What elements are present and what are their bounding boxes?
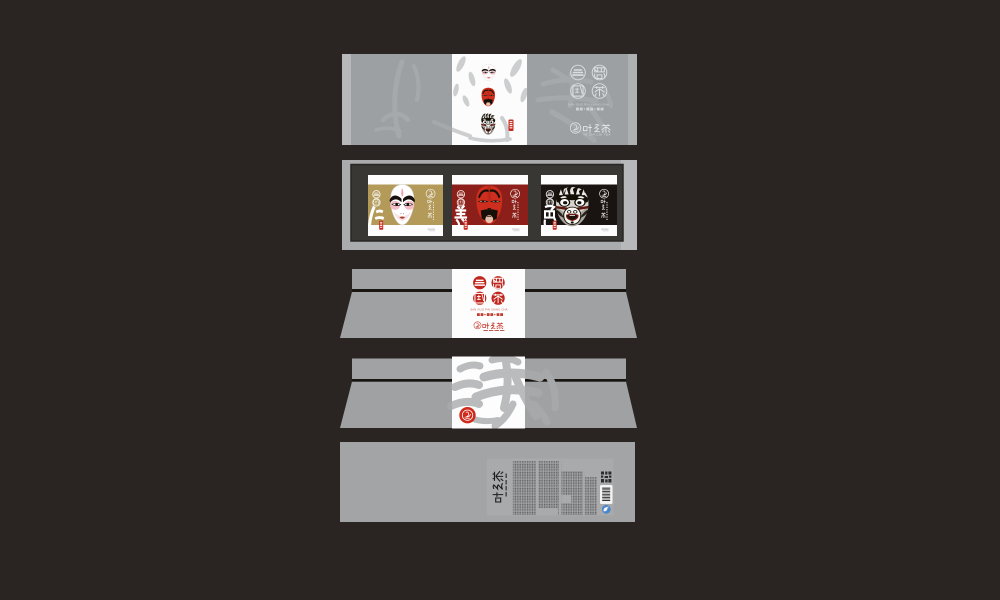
- svg-text:SAN GUO PIN XIANG CHA: SAN GUO PIN XIANG CHA: [568, 103, 609, 107]
- svg-text:YE ZHI CUI TEA: YE ZHI CUI TEA: [583, 132, 611, 136]
- svg-text:SAN GUO PIN XIANG CHA: SAN GUO PIN XIANG CHA: [470, 308, 507, 312]
